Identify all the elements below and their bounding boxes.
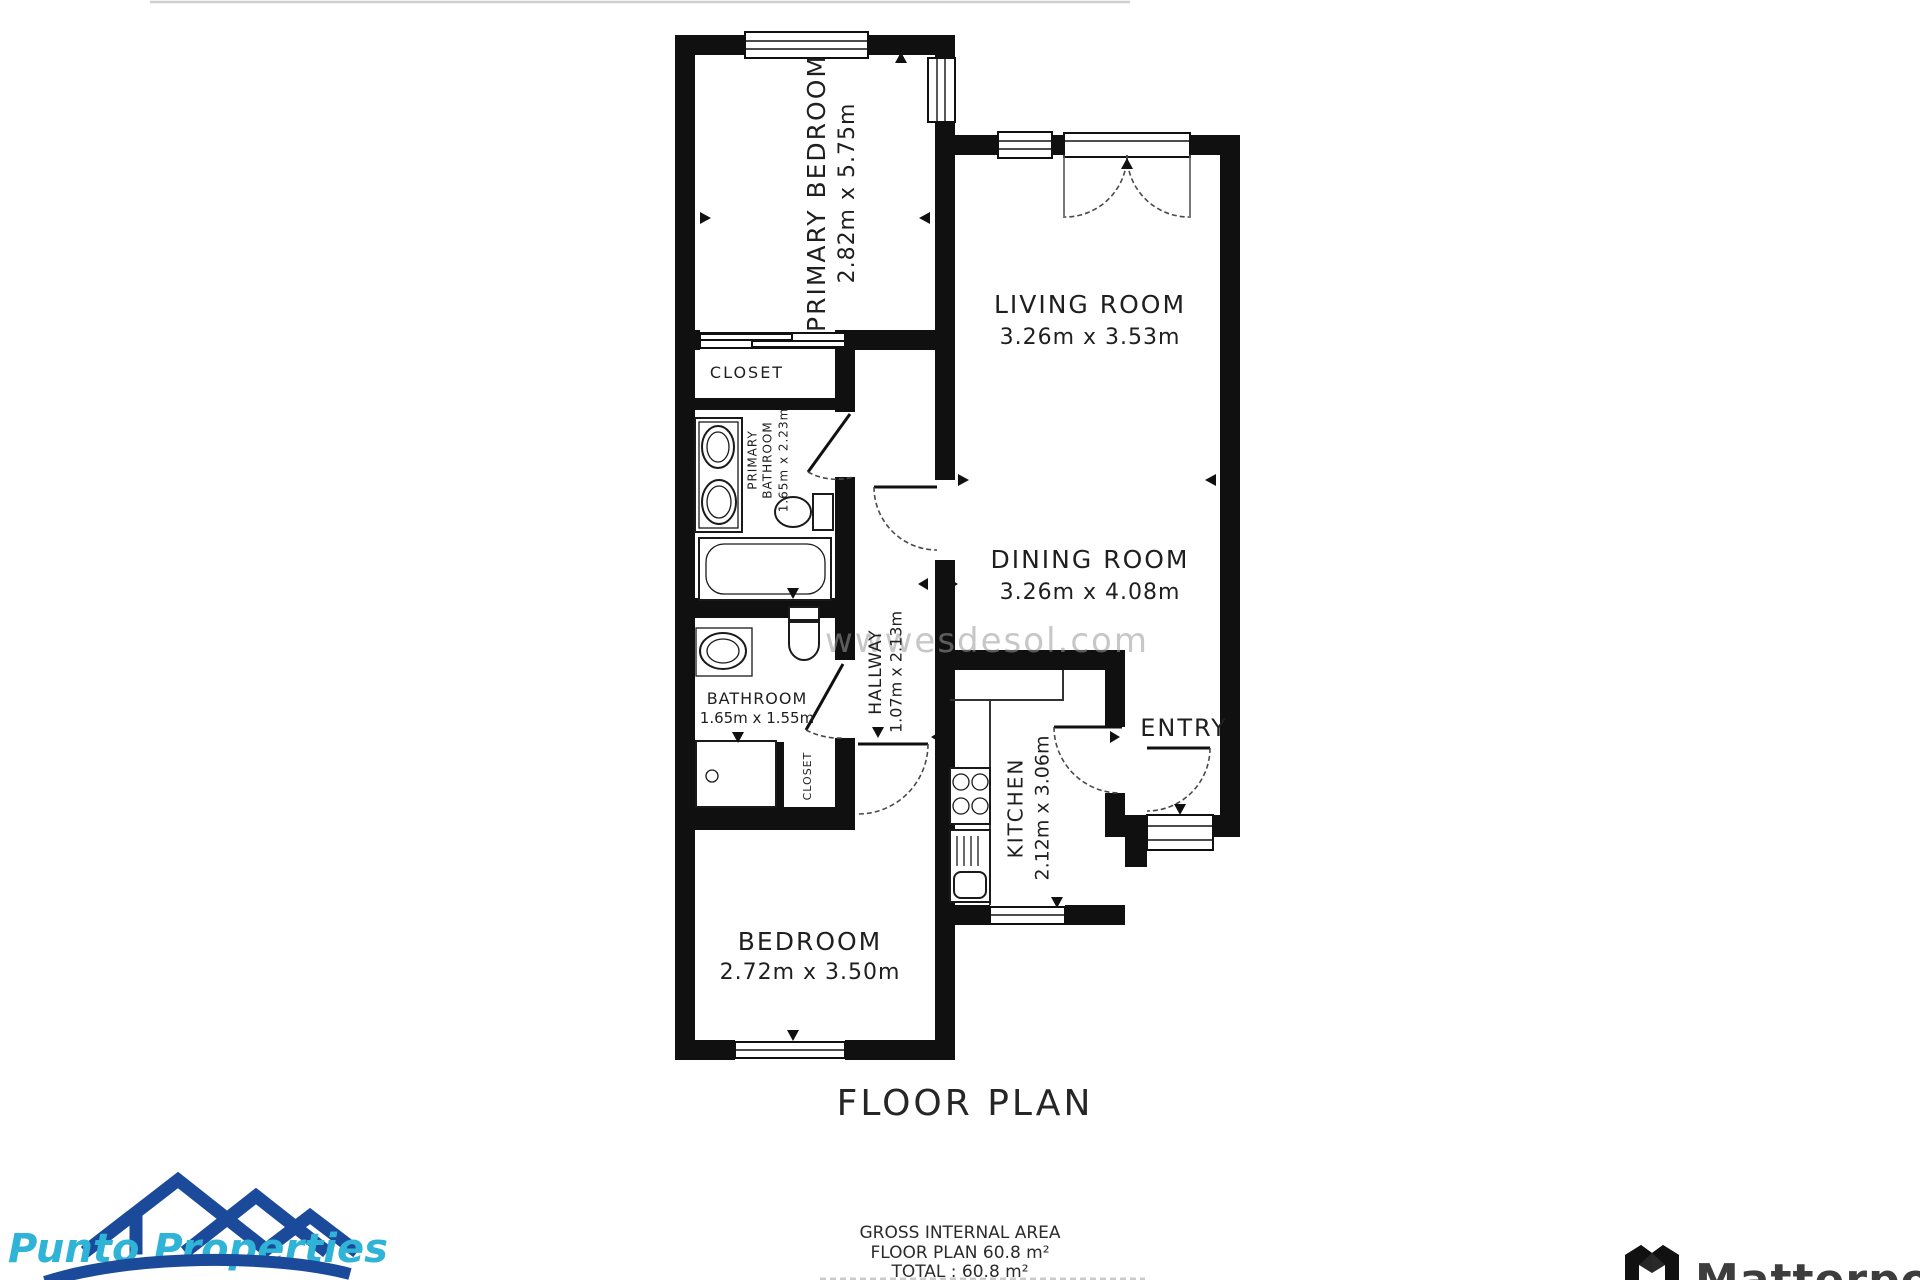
- double-door-left-swing: [1065, 155, 1127, 217]
- label-bedroom: BEDROOM: [738, 927, 883, 956]
- primary-bathroom-door-leaf: [808, 414, 850, 472]
- double-door-right-swing: [1127, 155, 1189, 217]
- area-summary: GROSS INTERNAL AREA FLOOR PLAN 60.8 m² T…: [820, 1223, 1145, 1280]
- label-closet-small: CLOSET: [801, 752, 814, 801]
- dims-dining-room: 3.26m x 4.08m: [1000, 580, 1181, 605]
- label-dining-room: DINING ROOM: [990, 545, 1189, 574]
- bedroom-door-swing: [858, 744, 928, 814]
- dims-primary-bathroom: 1.65m x 2.23m: [777, 408, 791, 513]
- dims-bedroom: 2.72m x 3.50m: [720, 960, 901, 985]
- label-primary-bathroom-1: PRIMARY: [746, 430, 760, 490]
- matterport-wordmark: Matterport: [1695, 1255, 1920, 1280]
- entry-door-swing: [1147, 748, 1210, 811]
- label-primary-bathroom-2: BATHROOM: [761, 421, 775, 498]
- label-primary-bedroom: PRIMARY BEDROOM: [802, 54, 831, 332]
- dims-bathroom: 1.65m x 1.55m: [700, 709, 814, 727]
- window-primary-bedroom-right: [928, 58, 955, 122]
- matterport-logo: Matterport: [1625, 1245, 1920, 1280]
- toilet-tank-symbol: [813, 494, 833, 530]
- gross-internal-area-line: GROSS INTERNAL AREA: [859, 1223, 1060, 1243]
- label-closet-top: CLOSET: [710, 363, 784, 382]
- hallway-door-swing: [874, 487, 937, 550]
- label-entry: ENTRY: [1140, 714, 1228, 742]
- dims-living-room: 3.26m x 3.53m: [1000, 325, 1181, 350]
- label-bathroom: BATHROOM: [707, 689, 808, 708]
- kitchen-counter-edge: [950, 670, 1063, 700]
- label-hallway: HALLWAY: [866, 629, 886, 714]
- floor-plan-canvas: wwwesdesol.com PRIMARY BEDROOM 2.82m x 5…: [0, 0, 1920, 1280]
- entry-threshold: [1147, 815, 1213, 850]
- toilet-symbol: [789, 622, 819, 660]
- balcony-door-threshold: [1064, 133, 1190, 157]
- dims-primary-bedroom: 2.82m x 5.75m: [835, 103, 860, 284]
- dims-hallway: 1.07m x 2.13m: [887, 611, 906, 733]
- kitchen-basin-symbol: [954, 872, 986, 898]
- label-kitchen: KITCHEN: [1004, 758, 1028, 859]
- floor-plan-area-line: FLOOR PLAN 60.8 m²: [870, 1243, 1049, 1263]
- floor-plan-page: wwwesdesol.com PRIMARY BEDROOM 2.82m x 5…: [0, 0, 1920, 1280]
- bathtub-symbol: [699, 538, 831, 600]
- total-area-line: TOTAL : 60.8 m²: [890, 1262, 1028, 1280]
- matterport-m-icon: [1625, 1245, 1679, 1280]
- dims-kitchen: 2.12m x 3.06m: [1032, 736, 1054, 881]
- punto-properties-logo: Punto Properties: [8, 1180, 388, 1280]
- window-living-room: [998, 132, 1052, 158]
- toilet-tank-symbol: [789, 607, 819, 620]
- shower-symbol: [696, 741, 776, 807]
- page-title: FLOOR PLAN: [837, 1083, 1094, 1124]
- bathroom-door-swing: [806, 730, 843, 738]
- label-living-room: LIVING ROOM: [994, 290, 1186, 319]
